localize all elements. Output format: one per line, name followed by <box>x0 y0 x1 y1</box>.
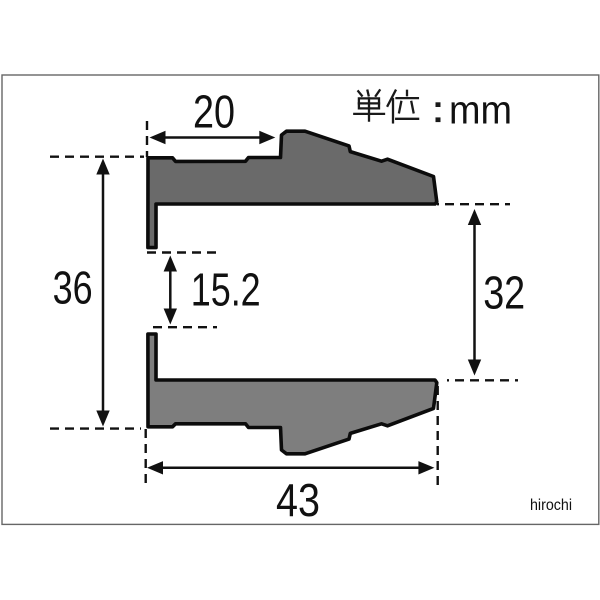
svg-text:15.2: 15.2 <box>191 263 261 315</box>
svg-text:hirochi: hirochi <box>530 497 572 514</box>
svg-text:mm: mm <box>449 89 512 133</box>
svg-text:20: 20 <box>193 86 235 138</box>
svg-text:36: 36 <box>53 262 93 314</box>
svg-text:32: 32 <box>483 266 525 318</box>
svg-text:43: 43 <box>276 474 320 526</box>
